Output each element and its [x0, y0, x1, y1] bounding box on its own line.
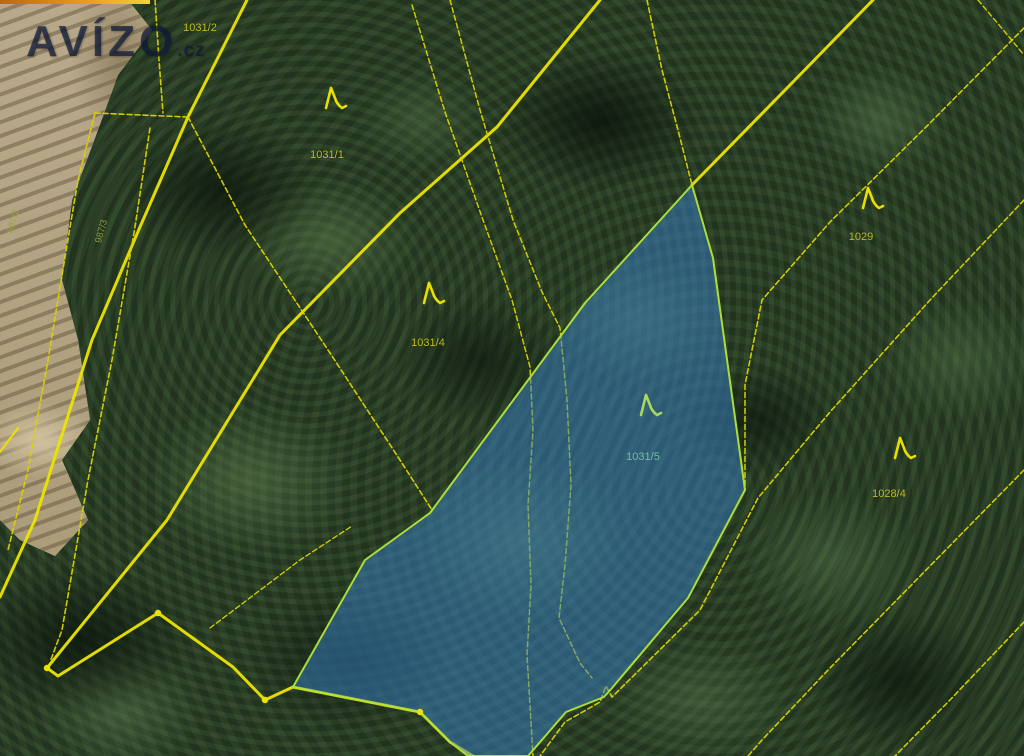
coniferous-forest-icon	[424, 283, 444, 303]
survey-point-marker	[44, 665, 50, 671]
parcel-number-label: 1029	[849, 231, 873, 243]
survey-point-marker	[155, 610, 161, 616]
brand-watermark-suffix: .cz	[177, 40, 205, 61]
brand-watermark-text: AVÍZO	[26, 17, 177, 66]
parcel-boundary-line	[50, 128, 150, 662]
parcel-boundary-line	[647, 0, 692, 185]
parcel-number-label: 1031/5	[626, 451, 660, 463]
survey-point-marker	[417, 709, 423, 715]
survey-point-marker	[262, 697, 268, 703]
parcel-number-label: 987/3	[93, 218, 110, 244]
coniferous-forest-icon	[895, 438, 915, 458]
parcel-number-label: 1031/1	[310, 149, 344, 161]
parcel-boundary-line	[0, 0, 247, 597]
parcel-number-label: 1028/4	[872, 488, 906, 500]
parcel-boundary-line	[748, 470, 1024, 756]
parcel-boundary-line	[210, 526, 352, 628]
parcel-boundary-line	[95, 113, 187, 117]
highlighted-parcel[interactable]	[293, 185, 745, 756]
parcel-boundary-line	[978, 0, 1024, 55]
parcel-boundary-line	[188, 117, 432, 510]
parcel-boundary-line	[0, 428, 18, 452]
parcel-number-label: 887/2	[5, 208, 22, 234]
parcel-boundary-line	[692, 0, 873, 185]
parcel-number-label: 1031/4	[411, 337, 445, 349]
parcel-boundary-line	[895, 622, 1024, 756]
parcel-boundary-line	[745, 28, 1024, 490]
parcel-boundary-line	[8, 113, 95, 550]
top-accent-bar	[0, 0, 150, 4]
cadastral-map-image[interactable]: 1031/21031/11031/41031/510291028/4887/29…	[0, 0, 1024, 756]
coniferous-forest-icon	[326, 88, 346, 108]
brand-watermark: AVÍZO.cz	[26, 20, 206, 64]
coniferous-forest-icon	[863, 188, 883, 208]
cadastral-overlay: 1031/21031/11031/41031/510291028/4887/29…	[0, 0, 1024, 756]
